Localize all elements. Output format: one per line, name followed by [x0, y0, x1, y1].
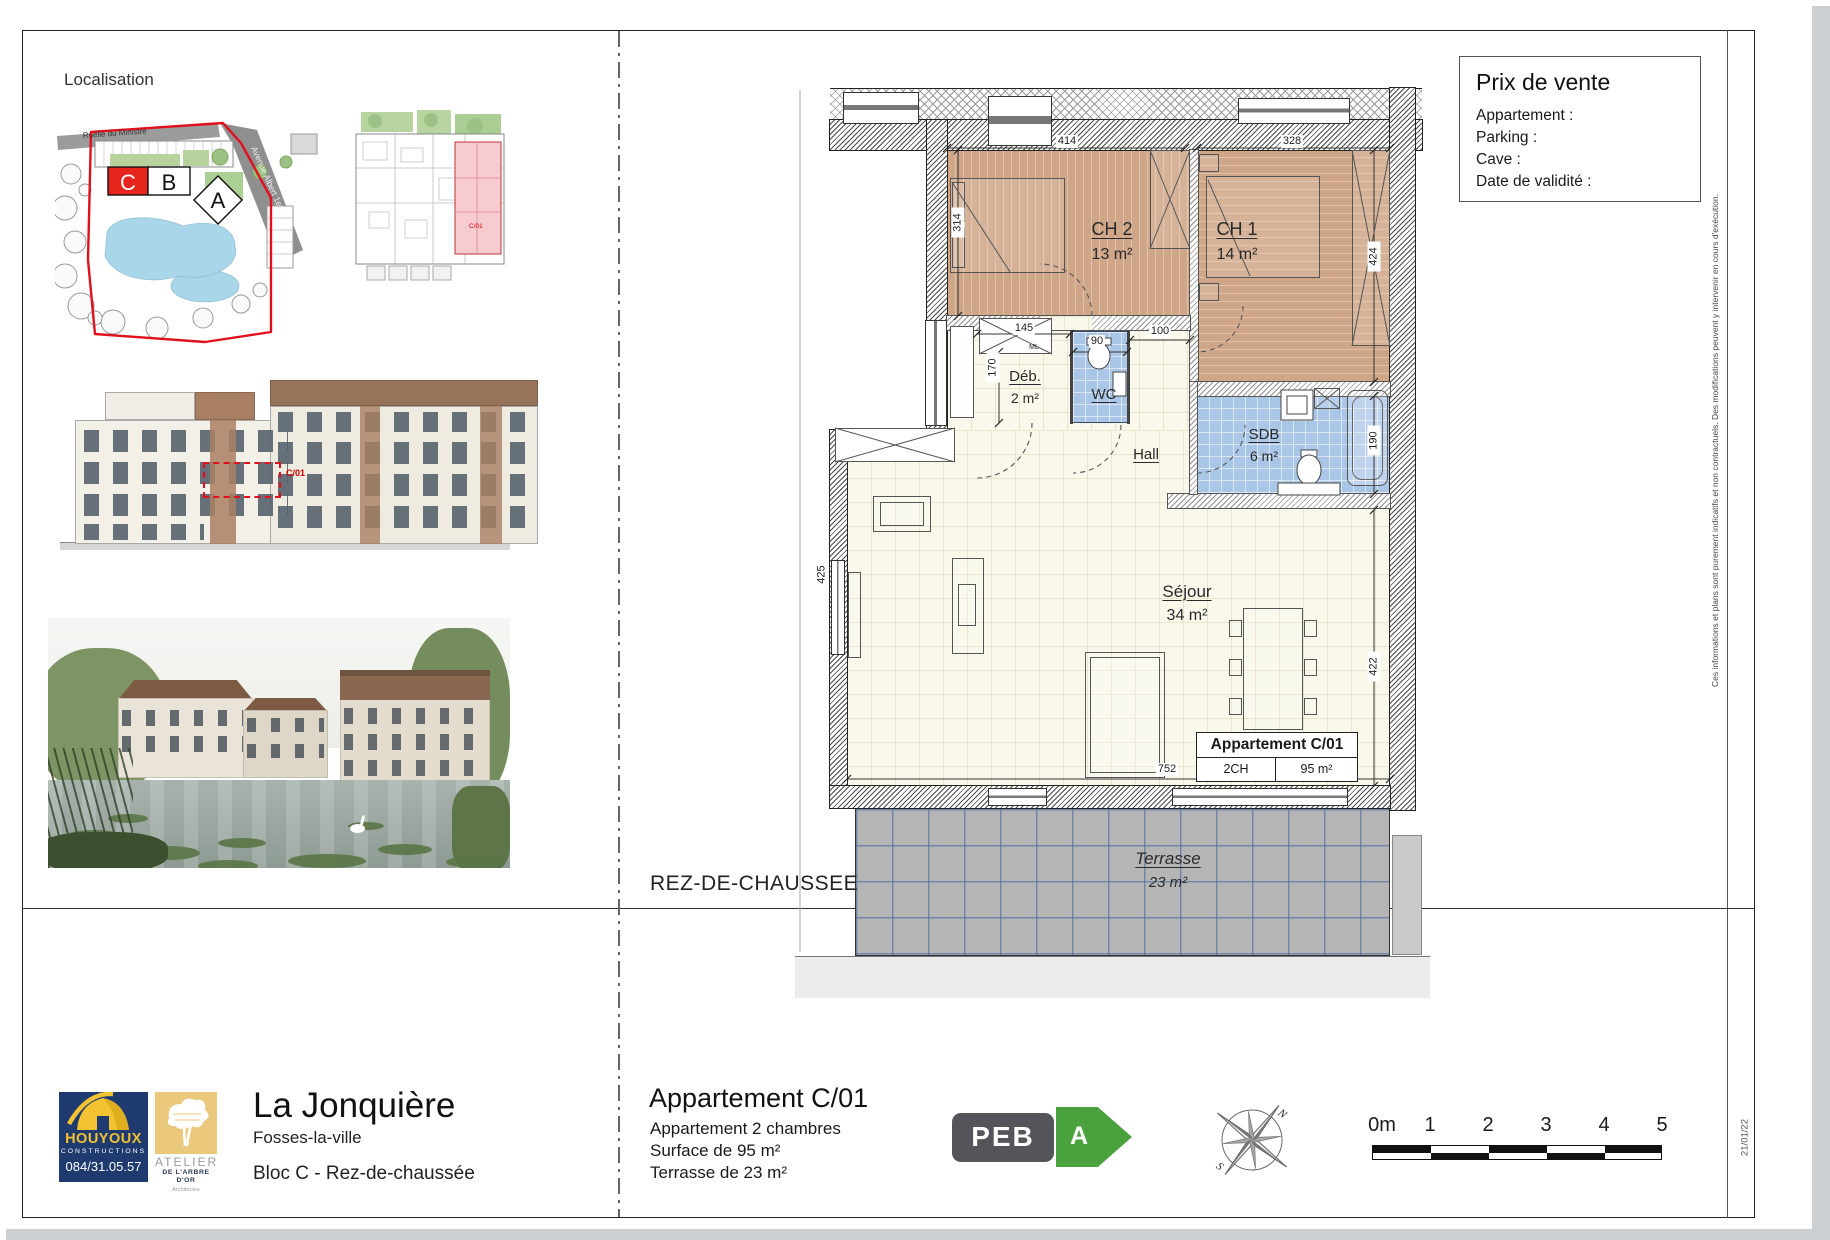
scale-bar — [1372, 1145, 1662, 1160]
dim-190: 190 — [1368, 426, 1381, 456]
scale-label-1: 1 — [1424, 1114, 1435, 1137]
dim-ml: ML — [1027, 341, 1041, 354]
room-label-ch2: CH 2 13 m² — [1091, 218, 1132, 265]
peb-label-box: PEB — [952, 1113, 1054, 1162]
dim-328: 328 — [1281, 135, 1303, 148]
houyoux-sub: CONSTRUCTIONS — [59, 1147, 148, 1157]
floor-plan: CH 2 13 m² CH 1 14 m² Déb. 2 m² WC Hall … — [0, 0, 1830, 1020]
scale-label-4: 4 — [1598, 1114, 1609, 1137]
sdb-fixtures — [1278, 390, 1340, 495]
room-label-ch1: CH 1 14 m² — [1216, 218, 1257, 265]
dim-414: 414 — [1056, 135, 1078, 148]
scale-label-5: 5 — [1656, 1114, 1667, 1137]
margin-disclaimer: Ces informations et plans sont purement … — [1710, 237, 1722, 687]
page-edge-bottom — [6, 1229, 1822, 1240]
dim-752: 752 — [1156, 763, 1178, 776]
houyoux-house-icon — [59, 1092, 148, 1132]
atelier-line2: DE L'ARBRE D'OR — [155, 1169, 217, 1185]
room-label-sejour: Séjour 34 m² — [1162, 581, 1211, 626]
dim-170: 170 — [987, 353, 1000, 383]
peb-grade-arrow: A — [1056, 1107, 1132, 1167]
room-label-wc: WC — [1092, 386, 1117, 405]
plan-sheet: { "colors": { "accent_red": "#E0101C", "… — [0, 0, 1830, 1240]
unit-table-title: Appartement C/01 — [1197, 733, 1357, 758]
houyoux-logo: HOUYOUX CONSTRUCTIONS 084/31.05.57 — [59, 1092, 148, 1182]
unit-table-bedrooms: 2CH — [1197, 758, 1276, 781]
houyoux-phone: 084/31.05.57 — [59, 1157, 148, 1177]
apartment-line2: Surface de 95 m² — [650, 1141, 780, 1161]
atelier-line1: ATELIER — [155, 1156, 217, 1169]
dim-100: 100 — [1149, 325, 1171, 338]
apartment-line1: Appartement 2 chambres — [650, 1119, 841, 1139]
dim-424: 424 — [1368, 242, 1381, 272]
apartment-line3: Terrasse de 23 m² — [650, 1163, 787, 1183]
dim-314: 314 — [952, 208, 965, 238]
dim-425: 425 — [816, 560, 829, 590]
room-label-sdb: SDB 6 m² — [1249, 426, 1280, 465]
scale-label-0: 0m — [1368, 1114, 1396, 1137]
unit-table: Appartement C/01 2CH 95 m² — [1196, 732, 1358, 782]
level-label: REZ-DE-CHAUSSEE — [650, 872, 858, 896]
scale-label-3: 3 — [1540, 1114, 1551, 1137]
room-label-hall: Hall — [1133, 446, 1159, 465]
compass-south: S — [1214, 1160, 1226, 1173]
scale-label-2: 2 — [1482, 1114, 1493, 1137]
project-name: La Jonquière — [253, 1086, 455, 1126]
dim-90: 90 — [1089, 335, 1105, 348]
compass-rose: N S — [1202, 1090, 1302, 1190]
project-block: Bloc C - Rez-de-chaussée — [253, 1163, 475, 1185]
peb-badge: PEB A — [952, 1107, 1152, 1163]
apartment-title: Appartement C/01 — [649, 1083, 868, 1114]
unit-table-area: 95 m² — [1276, 758, 1357, 781]
plan-linework — [0, 0, 1830, 1020]
project-city: Fosses-la-ville — [253, 1128, 362, 1148]
dim-422: 422 — [1368, 652, 1381, 682]
atelier-line3: Architectes — [155, 1185, 217, 1195]
houyoux-name: HOUYOUX — [59, 1132, 148, 1147]
room-label-deb: Déb. 2 m² — [1009, 368, 1041, 407]
plan-date: 21/01/22 — [1740, 1108, 1751, 1168]
atelier-tree-icon — [155, 1092, 217, 1154]
atelier-logo: ATELIER DE L'ARBRE D'OR Architectes — [155, 1092, 217, 1184]
dim-145: 145 — [1013, 322, 1035, 335]
room-label-terrasse: Terrasse 23 m² — [1135, 848, 1201, 893]
